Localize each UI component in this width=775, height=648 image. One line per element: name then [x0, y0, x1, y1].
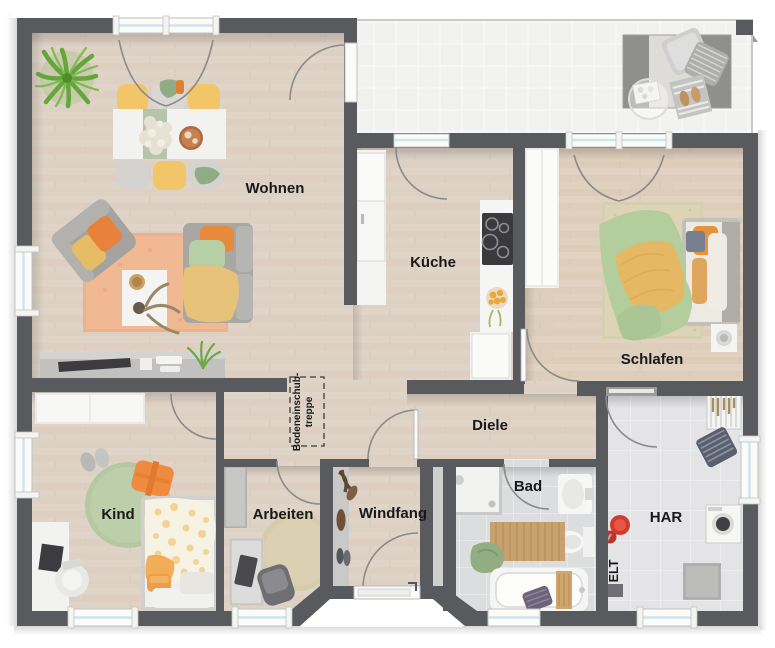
svg-text:Arbeiten: Arbeiten	[253, 506, 314, 523]
svg-text:ELT: ELT	[607, 559, 621, 582]
svg-text:treppe: treppe	[304, 396, 315, 427]
svg-text:Küche: Küche	[410, 254, 456, 271]
svg-text:Diele: Diele	[472, 417, 508, 434]
svg-text:Bad: Bad	[514, 478, 542, 495]
svg-text:Schlafen: Schlafen	[621, 351, 684, 368]
svg-text:Kind: Kind	[101, 506, 134, 523]
svg-text:Windfang: Windfang	[359, 505, 427, 522]
svg-text:Wohnen: Wohnen	[246, 180, 305, 197]
svg-text:HAR: HAR	[650, 509, 683, 526]
svg-text:Bodeneinschub-: Bodeneinschub-	[292, 373, 303, 451]
